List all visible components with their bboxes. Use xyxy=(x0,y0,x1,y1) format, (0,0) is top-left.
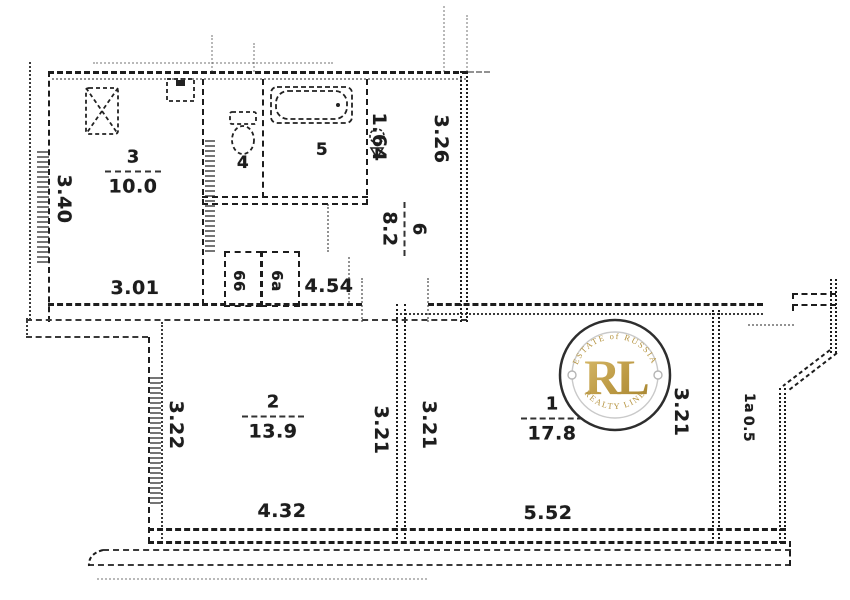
scan-artifact xyxy=(468,71,490,73)
room-label-kitchen: 3 10.0 xyxy=(105,147,161,198)
toilet-icon xyxy=(230,112,256,154)
fixtures-layer xyxy=(0,0,850,600)
room-label-loggia-number: 1a xyxy=(741,393,757,413)
room-label-bath: 5 xyxy=(316,140,328,160)
wall-kitchen-right-hatch xyxy=(205,140,215,252)
room-number: 2 xyxy=(242,392,304,413)
watermark-arc-bottom-text: REALTY LINE xyxy=(583,388,648,411)
scan-artifact xyxy=(253,43,255,72)
dim-room2-right: 3.21 xyxy=(370,406,392,455)
dim-room2-bottom: 4.32 xyxy=(258,500,307,522)
room-area: 17.8 xyxy=(521,418,583,445)
wall-loggia-right-lower xyxy=(779,388,786,543)
room-label-closet-a: 66 xyxy=(230,270,248,292)
dim-kitchen-side: 3.40 xyxy=(53,175,75,224)
room-number: 6 xyxy=(409,202,430,256)
wall-top xyxy=(48,71,468,74)
watermark-monogram: RL xyxy=(584,349,648,405)
wall-sanitary-bottom xyxy=(202,196,368,205)
wall-left-hatch xyxy=(37,148,49,263)
wall-room2-left-inner xyxy=(161,322,163,543)
door-jamb-left xyxy=(361,278,363,322)
dim-room1-left: 3.21 xyxy=(418,401,440,450)
wall-top-right-step-edge xyxy=(792,293,794,311)
watermark-left-dot-icon xyxy=(568,371,576,379)
watermark-arc-top-text: ESTATE of RUSSIA xyxy=(570,331,660,366)
balcony-left-edge xyxy=(89,550,103,566)
wall-room2-left-outer xyxy=(148,337,150,543)
wall-rooms-bottom-inner xyxy=(148,528,786,531)
wall-top-right-step xyxy=(792,293,836,306)
ledge-line xyxy=(26,336,148,338)
wall-loggia-left xyxy=(712,310,720,543)
wall-room1-room2-divider xyxy=(396,304,406,543)
room-area: 13.9 xyxy=(242,416,304,443)
room-label-loggia-area: 0.5 xyxy=(740,416,756,442)
wall-wc-bath-divider xyxy=(262,79,264,198)
wall-kitchen-right xyxy=(202,79,204,305)
balcony-band-right-edge xyxy=(789,541,791,566)
scan-artifact xyxy=(93,62,333,64)
stove-icon xyxy=(86,88,118,134)
room-label-closet-b: 6a xyxy=(268,270,286,292)
room-label-room2: 2 13.9 xyxy=(242,392,304,443)
ledge-edge xyxy=(26,318,28,338)
loggia-diagonal-wall xyxy=(783,350,837,390)
room-label-room1: 1 17.8 xyxy=(521,394,583,445)
floor-plan: 3 10.0 4 5 6 8.2 66 6a 2 13.9 1 17.8 1a … xyxy=(0,0,850,600)
vent-icon xyxy=(167,79,194,101)
wall-left xyxy=(48,71,50,322)
wall-room2-left-hatch xyxy=(150,376,161,504)
room-label-wc: 4 xyxy=(237,153,249,173)
balcony-band-bottom xyxy=(88,564,791,566)
wall-rooms-bottom-outer xyxy=(148,541,786,544)
wall-room1-top-inner xyxy=(400,313,763,315)
room-area: 10.0 xyxy=(105,171,161,198)
wall-top-inner xyxy=(52,78,466,80)
scan-artifact xyxy=(97,578,427,580)
balcony-band-top xyxy=(103,549,791,551)
scan-artifact xyxy=(211,35,213,72)
scan-artifact xyxy=(466,15,468,72)
room-label-hall: 6 8.2 xyxy=(379,202,430,256)
bathtub-icon xyxy=(271,87,352,123)
dim-room1-bottom: 5.52 xyxy=(524,502,573,524)
scan-artifact xyxy=(443,6,445,72)
room-number: 3 xyxy=(105,147,161,168)
wall-outer-left xyxy=(29,62,31,320)
door-jamb-right xyxy=(427,278,429,322)
wall-loggia-right-upper xyxy=(830,279,837,353)
wall-bottom-left-segment xyxy=(48,303,362,306)
wall-bottom-outer xyxy=(26,319,467,321)
dim-kitchen-bottom: 3.01 xyxy=(111,277,160,299)
dim-room1-right: 3.21 xyxy=(670,388,692,437)
room-number: 1 xyxy=(521,394,583,415)
loggia-sill-line xyxy=(748,324,794,326)
dim-room2-left: 3.22 xyxy=(165,401,187,450)
dim-hall-top-right: 3.26 xyxy=(430,115,452,164)
dim-hall-top-left: 1.64 xyxy=(368,113,390,162)
corridor-jamb-a xyxy=(327,204,329,252)
room-area: 8.2 xyxy=(379,202,406,256)
watermark-right-dot-icon xyxy=(654,371,662,379)
watermark-inner-ring xyxy=(572,332,658,418)
wall-bottom-right-segment xyxy=(428,303,763,306)
wall-right-upper-unit xyxy=(460,71,468,322)
dim-corridor-bottom: 4.54 xyxy=(305,275,354,297)
